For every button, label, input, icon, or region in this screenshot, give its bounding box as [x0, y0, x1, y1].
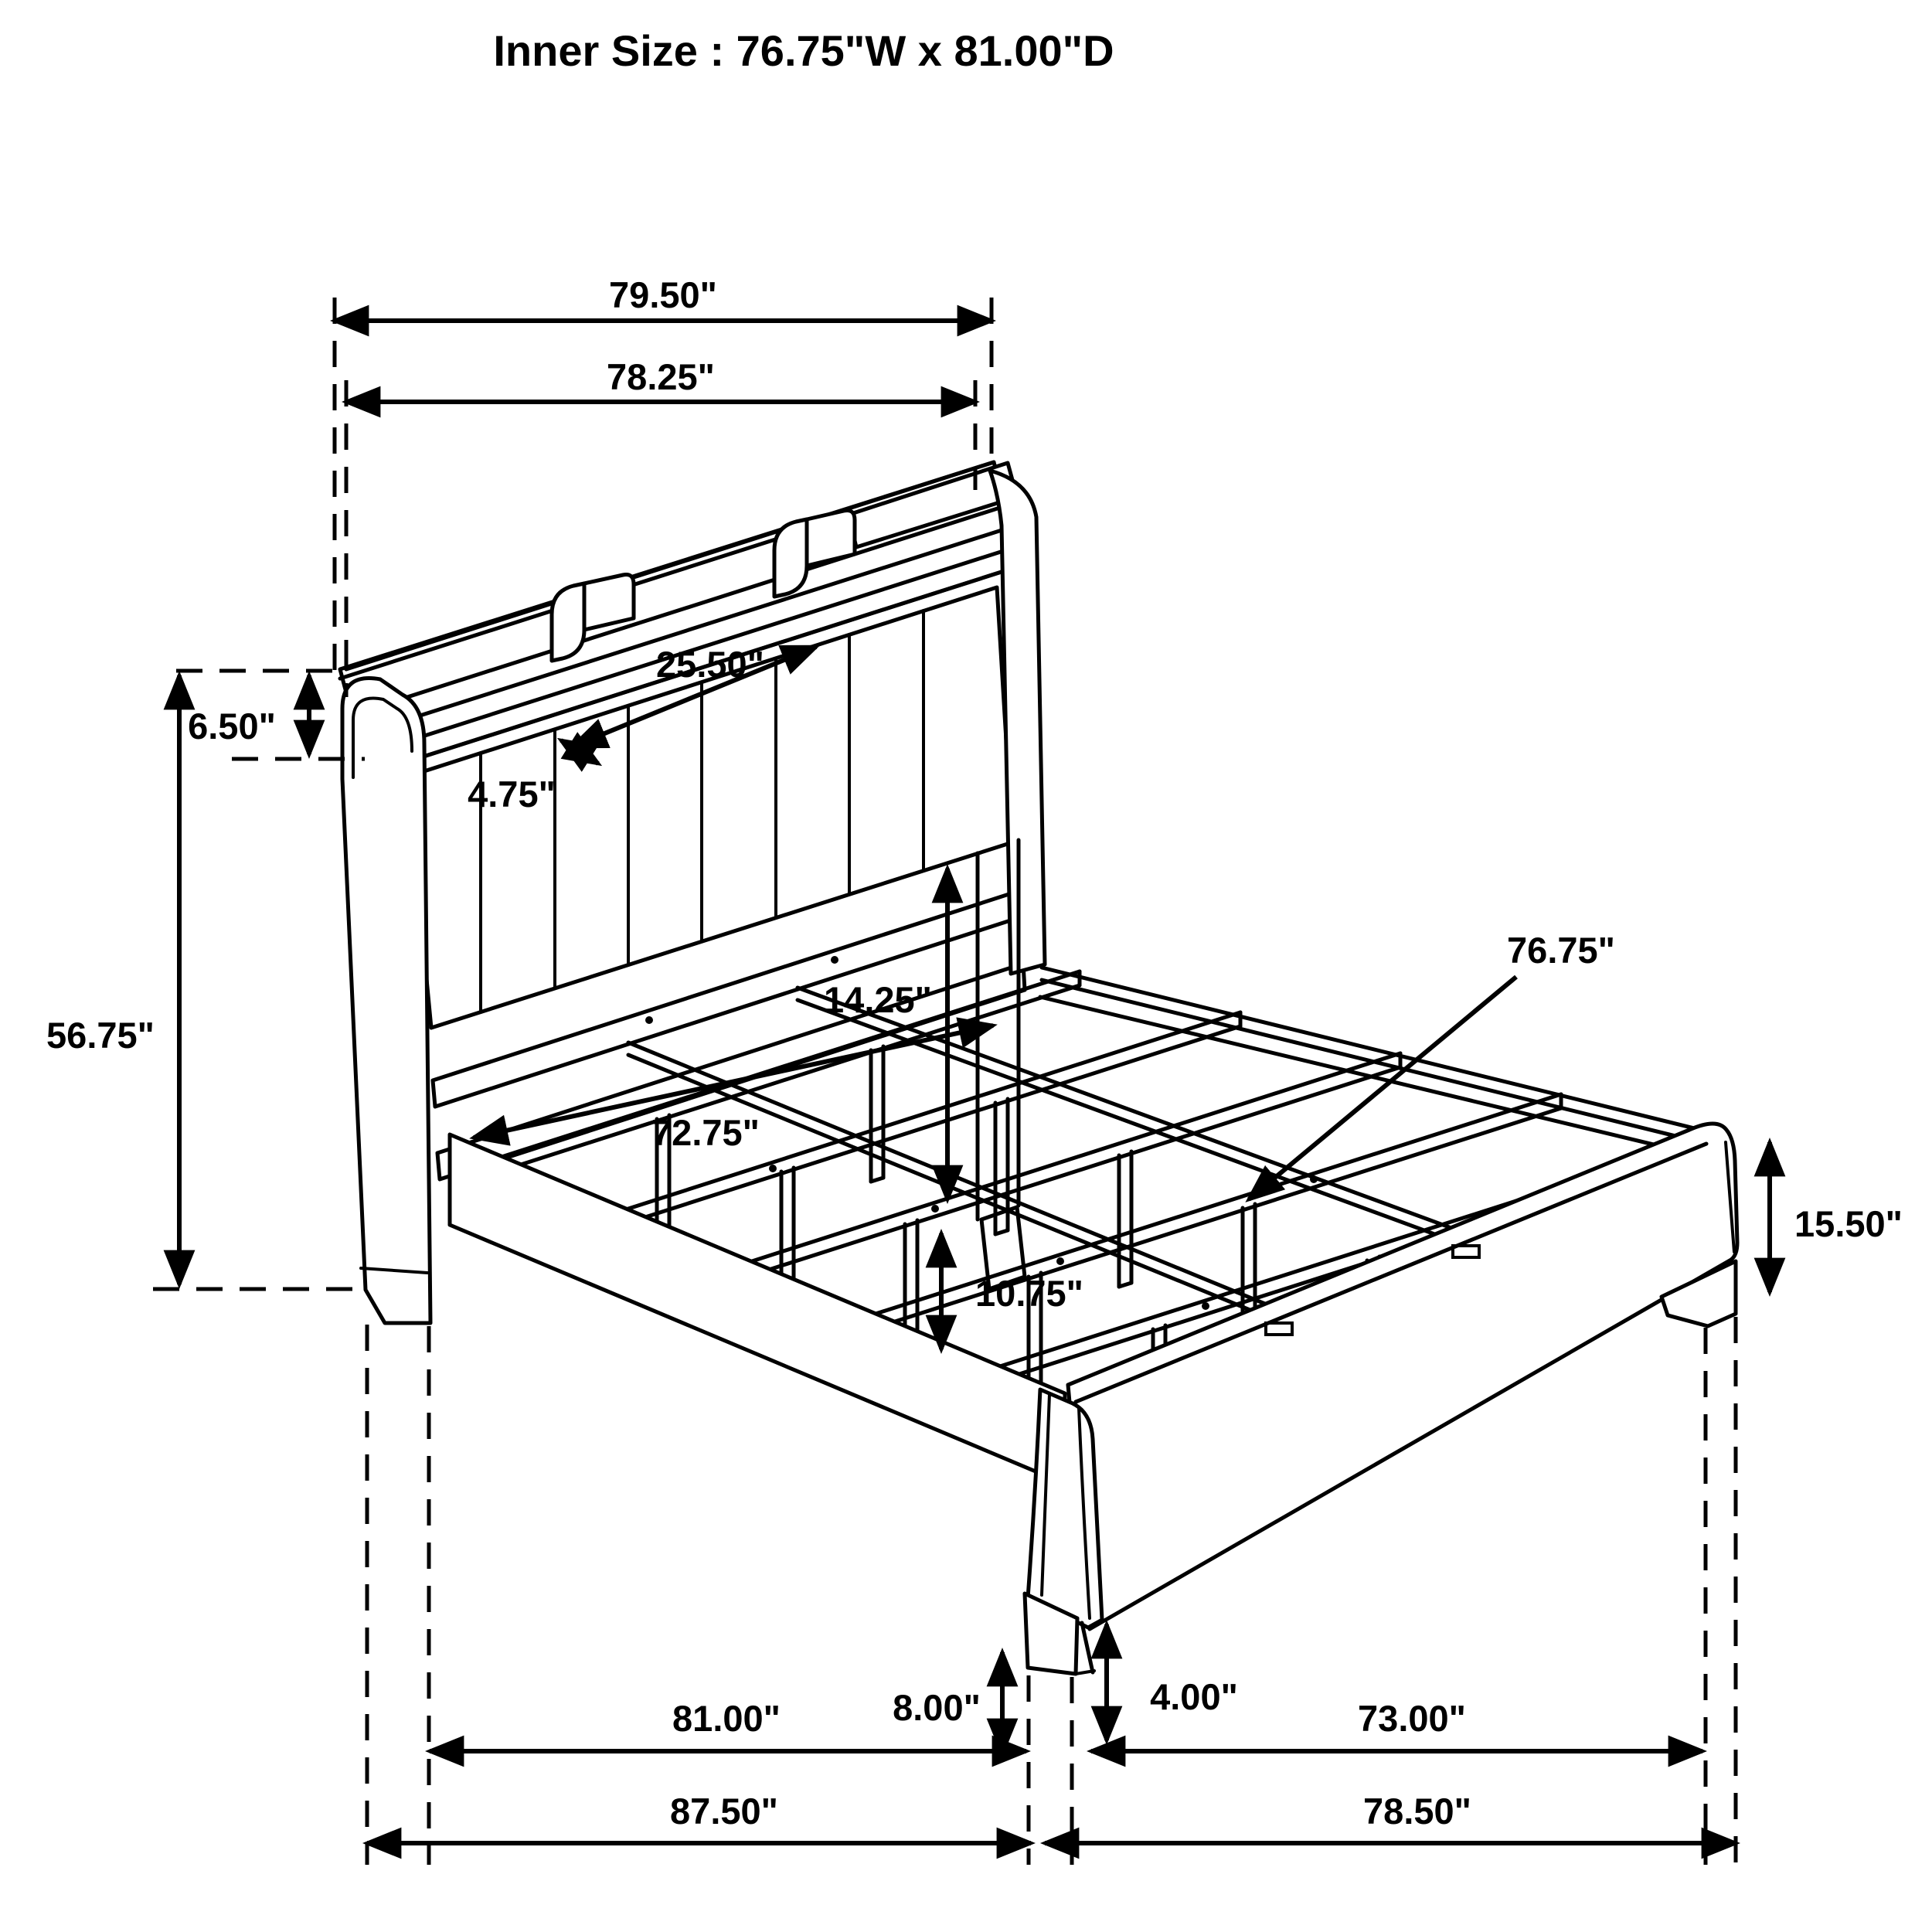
screw-dot [931, 1205, 939, 1213]
front-corner-column [1025, 1389, 1102, 1674]
dim-label-shelf-compartment-width: 25.50" [656, 644, 764, 685]
support-leg [1119, 1151, 1131, 1287]
screw-dot [1202, 1302, 1209, 1310]
dim-label-overall-depth: 87.50" [670, 1791, 778, 1832]
dim-label-inner-depth: 81.00" [672, 1698, 781, 1739]
dim-label-footboard-leg-height: 4.00" [1150, 1676, 1238, 1717]
dim-label-slat-length: 76.75" [1507, 930, 1615, 971]
headboard-left-post [342, 679, 430, 1323]
slat [750, 1053, 1400, 1276]
bed-dimension-diagram: Inner Size : 76.75"W x 81.00"D 79.50" 78… [0, 0, 1932, 1932]
headboard [340, 462, 1045, 1323]
footboard [1068, 1124, 1737, 1629]
dim-label-footboard-inner-span: 73.00" [1358, 1698, 1466, 1739]
dim-label-headboard-outer-width: 79.50" [609, 274, 717, 315]
diagram-canvas: Inner Size : 76.75"W x 81.00"D 79.50" 78… [0, 0, 1932, 1932]
dim-label-headboard-height: 56.75" [46, 1015, 155, 1056]
dim-label-panel-to-slat-gap: 14.25" [824, 979, 932, 1020]
dim-label-headboard-inner-width: 72.75" [651, 1112, 760, 1153]
page-title: Inner Size : 76.75"W x 81.00"D [493, 26, 1114, 75]
left-side-rail [450, 1134, 1065, 1484]
screw-dot [1056, 1257, 1064, 1265]
bed-base [450, 968, 1737, 1674]
screw-dot [831, 956, 838, 964]
dim-label-shelf-height: 6.50" [188, 706, 276, 747]
screw-dot [645, 1016, 653, 1024]
dim-label-headboard-shelf-width: 78.25" [607, 356, 715, 397]
dim-label-shelf-compartment-depth: 4.75" [468, 774, 556, 815]
dim-label-frame-floor-clearance: 8.00" [893, 1687, 981, 1728]
support-leg [871, 1046, 883, 1182]
dim-label-support-leg-height: 10.75" [975, 1273, 1083, 1314]
center-rail [798, 988, 1475, 1249]
dim-label-footboard-height: 15.50" [1794, 1203, 1903, 1244]
screw-dot [769, 1165, 777, 1172]
dim-label-footboard-outer-span: 78.50" [1363, 1791, 1471, 1832]
right-side-rail [1040, 968, 1721, 1161]
